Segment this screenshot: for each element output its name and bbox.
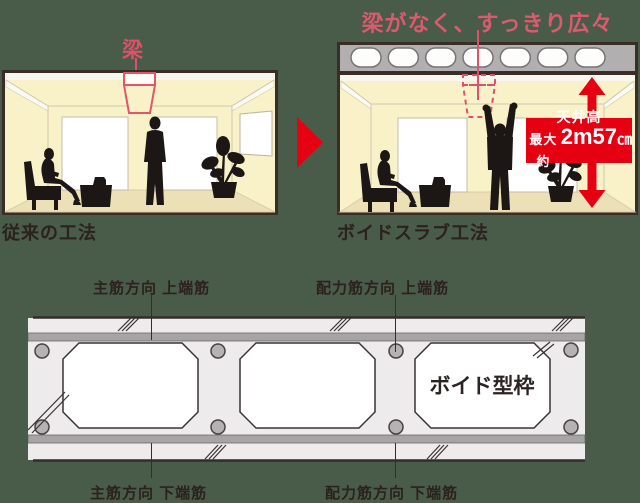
void-form-label: ボイド型枠 bbox=[430, 374, 535, 398]
label-distribution-bar-bottom: 配力筋方向 下端筋 bbox=[325, 482, 458, 503]
leader-distribution-bar-top bbox=[395, 295, 396, 352]
ceiling-height-label: 天井高 bbox=[557, 109, 602, 126]
ceiling-height-value: 最大 約2m57㎝ bbox=[526, 126, 632, 173]
top-rebar-band bbox=[28, 333, 585, 341]
beam-label: 梁 bbox=[122, 34, 143, 64]
void-slab-caption: ボイドスラブ工法 bbox=[337, 219, 489, 245]
conventional-room-illustration bbox=[2, 70, 278, 215]
label-distribution-bar-top: 配力筋方向 上端筋 bbox=[316, 277, 449, 298]
slab-cross-section-diagram: ボイド型枠 bbox=[28, 315, 588, 463]
bottom-rebar-band bbox=[28, 435, 585, 443]
wall-picture-frame bbox=[240, 111, 272, 156]
standing-man-silhouette bbox=[150, 117, 161, 130]
leader-distribution-bar-bottom bbox=[395, 443, 396, 478]
void-slab-headline: 梁がなく、すっきり広々 bbox=[337, 6, 638, 38]
void-slab-infographic: 梁 bbox=[0, 0, 640, 503]
ceiling-height-callout: 天井高 最大 約2m57㎝ bbox=[526, 118, 632, 163]
headline-leader-line bbox=[477, 30, 479, 100]
comparison-arrow-icon bbox=[296, 116, 324, 169]
conventional-caption: 従来の工法 bbox=[2, 219, 97, 245]
leader-main-bar-bottom bbox=[151, 443, 152, 478]
leader-main-bar-top bbox=[151, 295, 152, 340]
ceiling-beam bbox=[124, 73, 155, 113]
label-main-bar-bottom: 主筋方向 下端筋 bbox=[90, 482, 207, 503]
void-slab-section bbox=[339, 44, 637, 73]
